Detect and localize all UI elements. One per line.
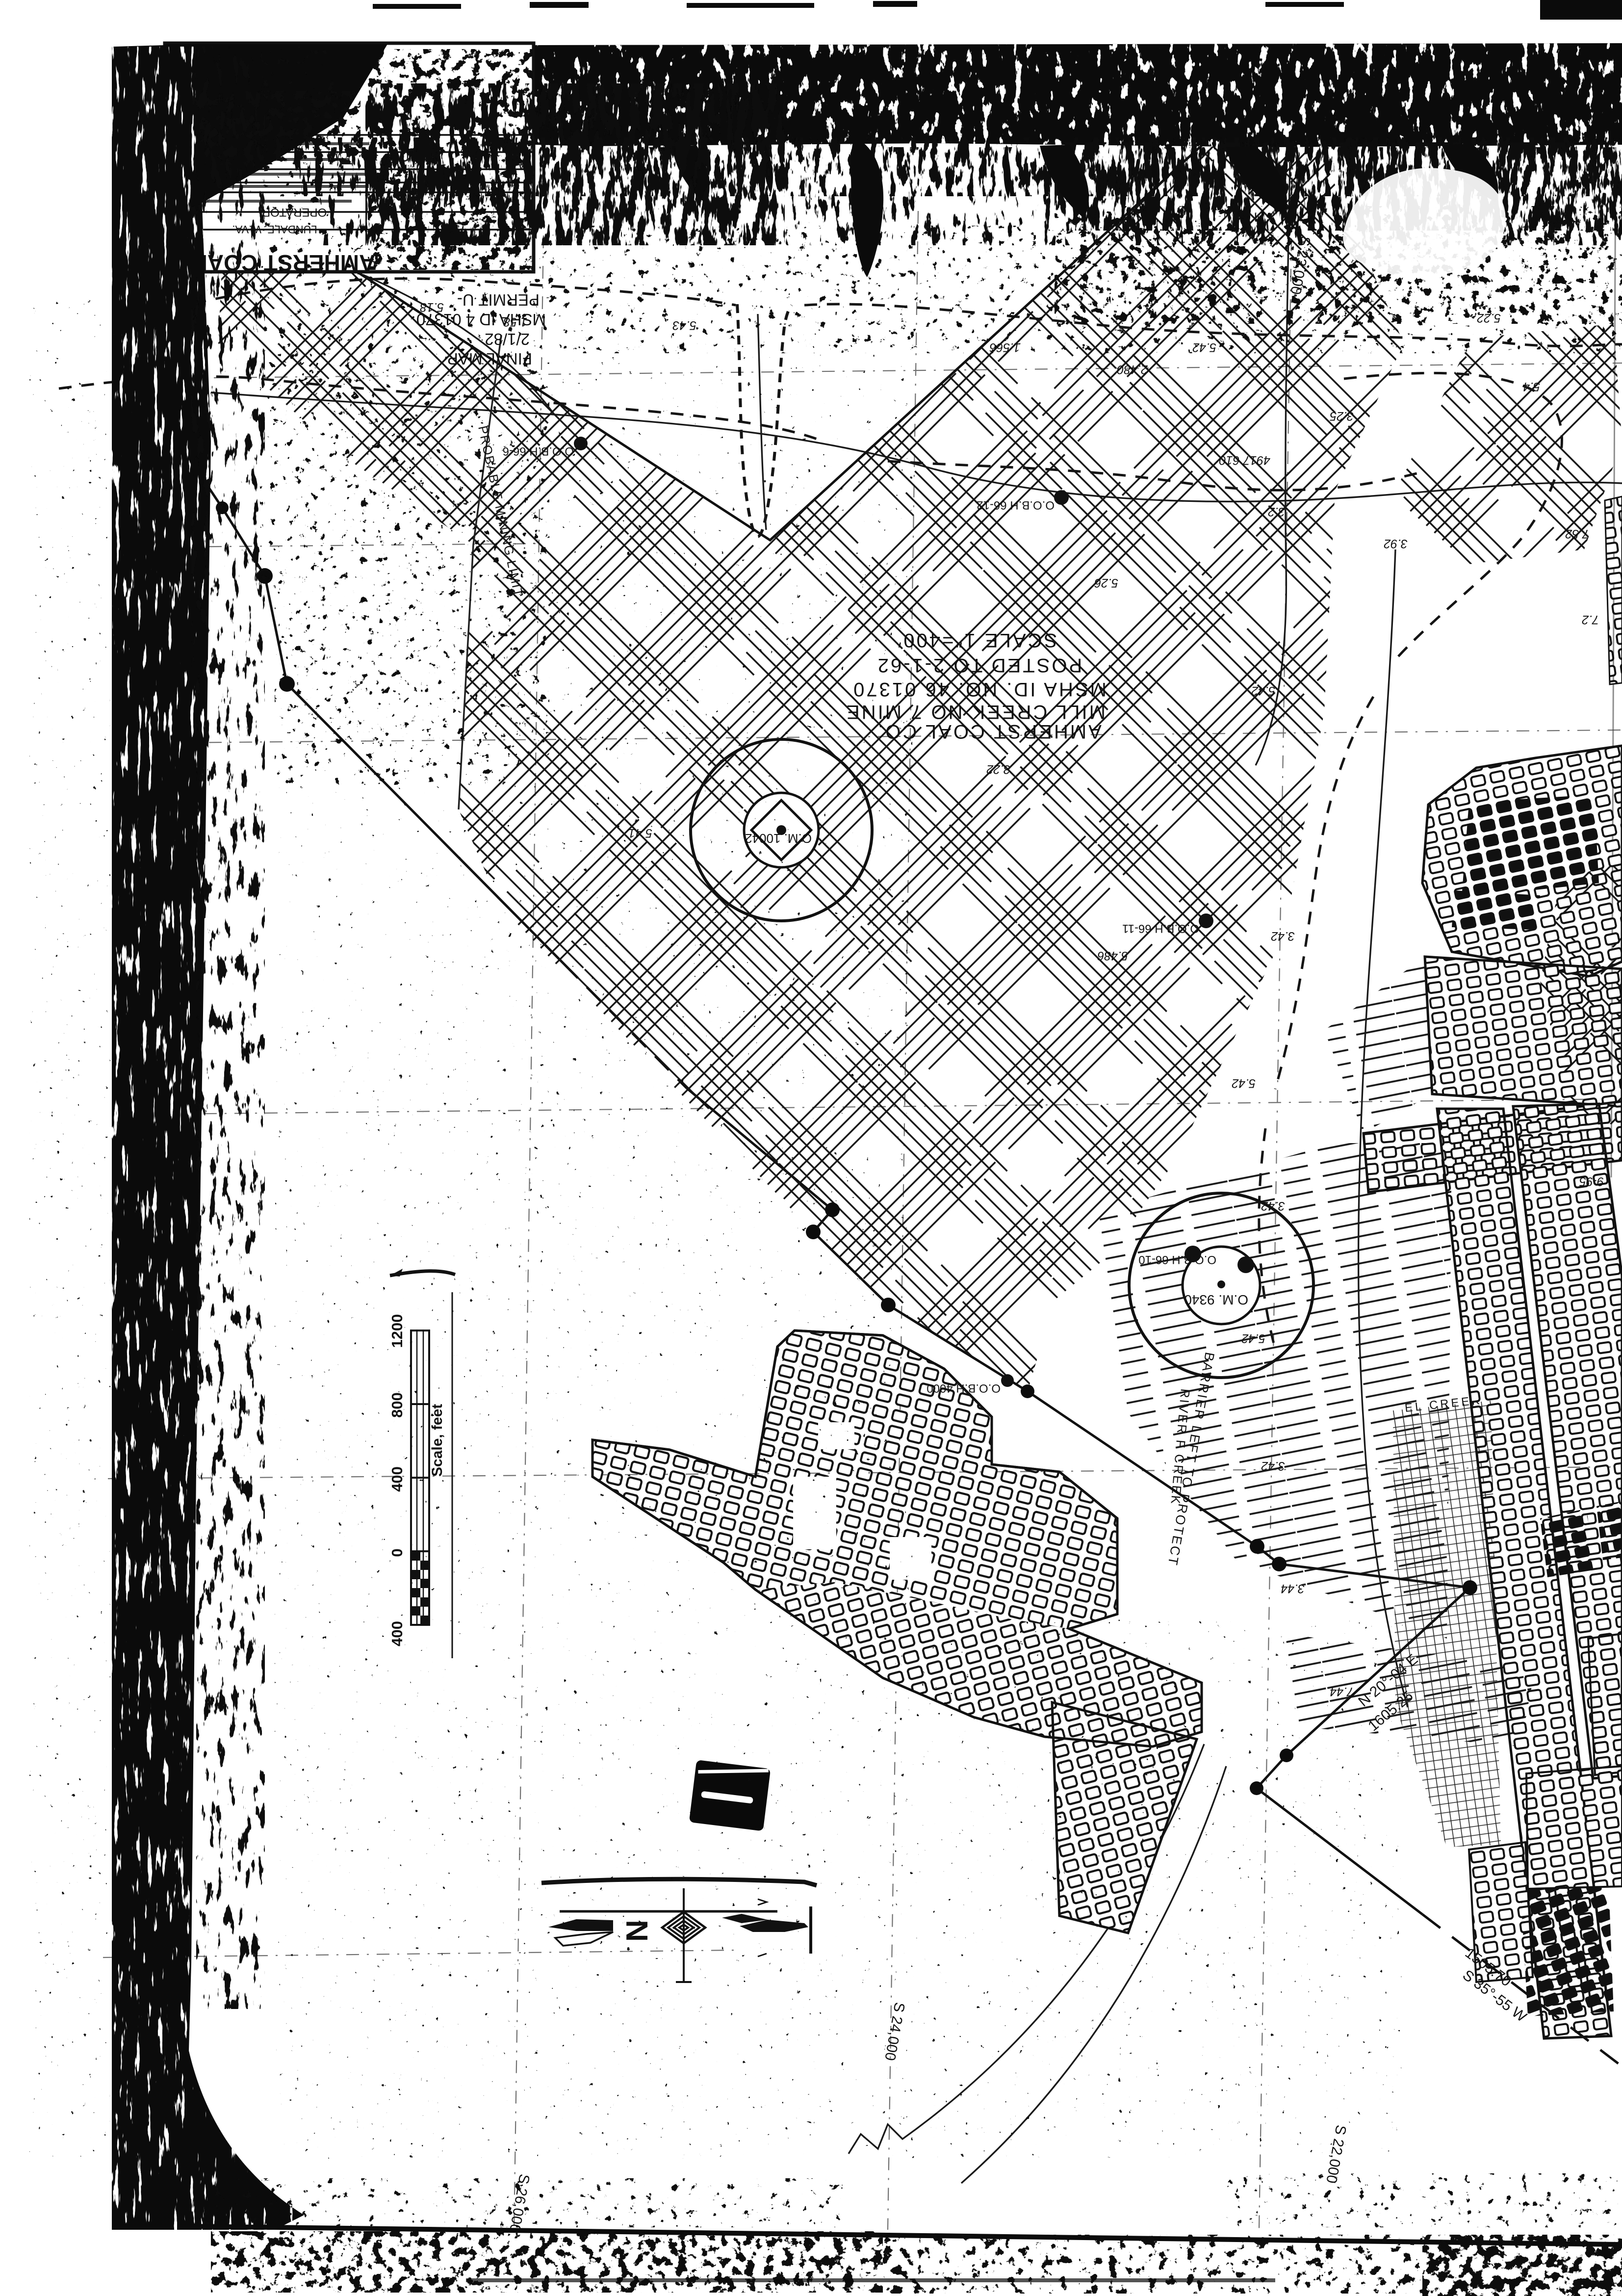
svg-text:3.42: 3.42 [1271, 929, 1295, 943]
svg-text:O.O.B.H 66-10: O.O.B.H 66-10 [1138, 1253, 1216, 1266]
svg-text:3.44: 3.44 [1281, 1582, 1305, 1595]
svg-text:5.42: 5.42 [1251, 684, 1275, 698]
svg-text:4917 610: 4917 610 [1219, 453, 1270, 467]
svg-text:O.O.B.H 66-12: O.O.B.H 66-12 [977, 498, 1055, 512]
svg-text:2.480: 2.480 [1117, 363, 1148, 376]
svg-text:3.92: 3.92 [1384, 537, 1408, 550]
svg-text:5.26: 5.26 [1094, 576, 1118, 590]
svg-text:3.22: 3.22 [986, 762, 1010, 776]
svg-text:7.52: 7.52 [1565, 527, 1589, 541]
svg-text:3.2: 3.2 [1268, 505, 1285, 519]
svg-text:SCALE 1″=400′: SCALE 1″=400′ [896, 629, 1057, 651]
svg-text:9-95: 9-95 [1579, 1174, 1604, 1188]
svg-text:5.486: 5.486 [1097, 949, 1128, 963]
svg-text:O.O.B.H 4000: O.O.B.H 4000 [927, 1382, 1001, 1395]
svg-text:O.O.B.H 66-11: O.O.B.H 66-11 [1122, 922, 1199, 935]
svg-text:5.42: 5.42 [1241, 1331, 1265, 1345]
svg-text:5.42: 5.42 [1232, 1076, 1256, 1090]
svg-text:3.42: 3.42 [1261, 1199, 1285, 1213]
svg-text:7.2: 7.2 [1582, 613, 1599, 626]
svg-text:5.4: 5.4 [1523, 380, 1540, 393]
svg-text:3.25: 3.25 [1330, 409, 1354, 423]
svg-text:O.M. 9340: O.M. 9340 [1184, 1292, 1248, 1307]
svg-text:3.42: 3.42 [1261, 1459, 1285, 1473]
